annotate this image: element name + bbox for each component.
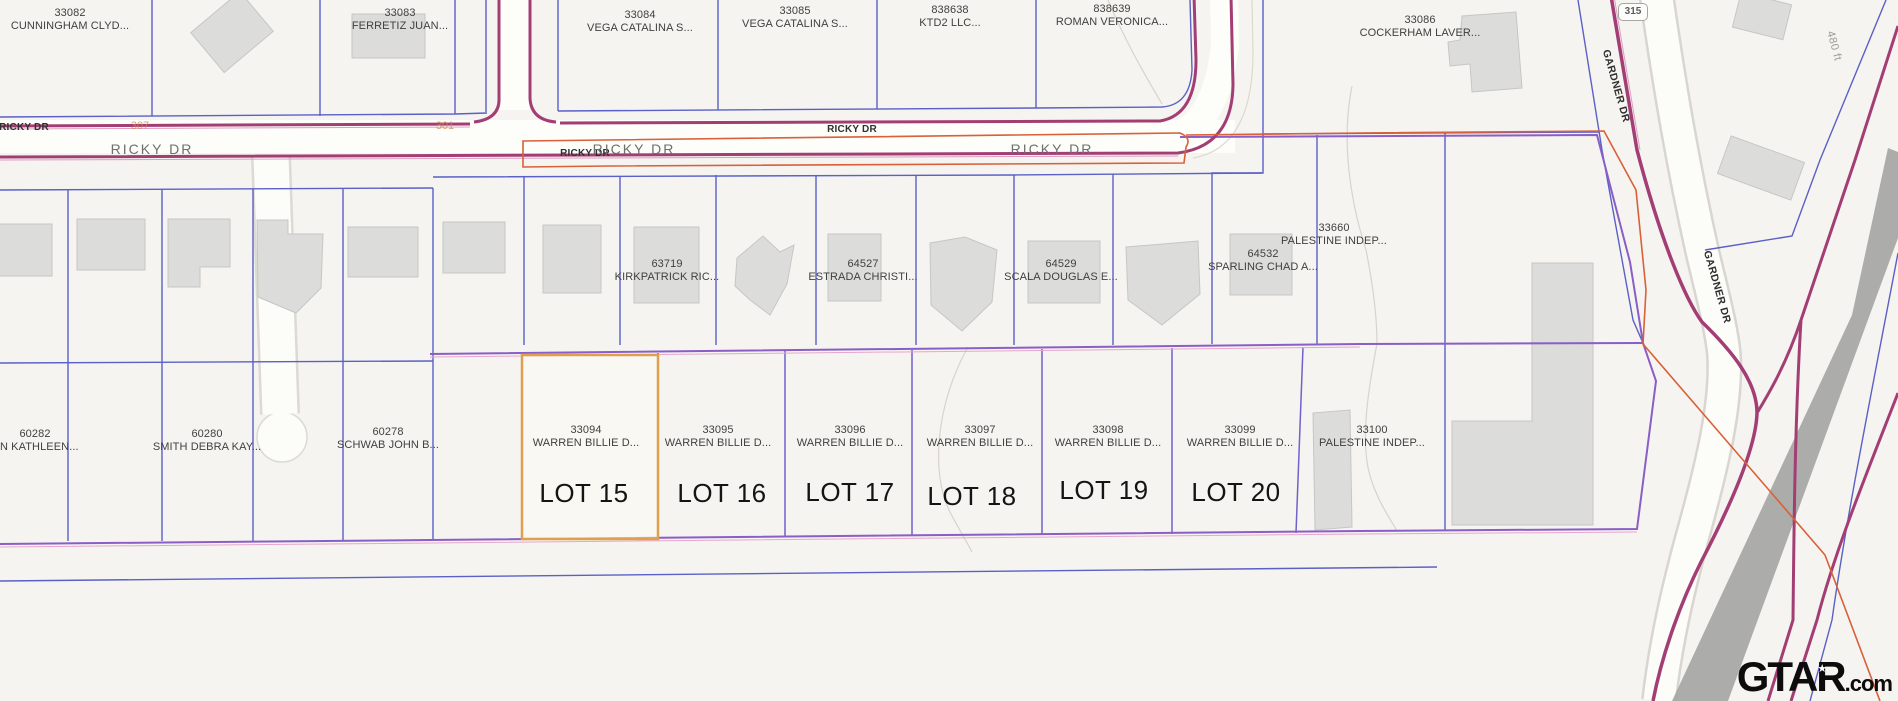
parcel-label[interactable]: 64529SCALA DOUGLAS E... bbox=[1004, 258, 1118, 284]
lot-number-label: LOT 16 bbox=[677, 478, 766, 509]
road-ref-number: 301 bbox=[436, 120, 454, 132]
parcel-label-lot18[interactable]: 33097WARREN BILLIE D... bbox=[927, 424, 1034, 450]
gis-parcel-map-canvas[interactable]: 33082CUNNINGHAM CLYD... 33083FERRETIZ JU… bbox=[0, 0, 1898, 701]
parcel-label[interactable]: 33085VEGA CATALINA S... bbox=[742, 5, 848, 31]
road-surfaces bbox=[0, 0, 1724, 701]
parcel-label[interactable]: 33660PALESTINE INDEP... bbox=[1281, 222, 1387, 248]
parcel-label[interactable]: 33083FERRETIZ JUAN... bbox=[352, 7, 448, 33]
street-label-ricky-dr: RICKY DR bbox=[593, 141, 676, 157]
parcel-label[interactable]: 60278SCHWAB JOHN B... bbox=[337, 426, 439, 452]
parcel-label[interactable]: 838638KTD2 LLC... bbox=[919, 4, 981, 30]
watermark-text: R bbox=[1816, 653, 1844, 700]
lot-number-label: LOT 15 bbox=[539, 478, 628, 509]
parcel-label-lot19[interactable]: 33098WARREN BILLIE D... bbox=[1055, 424, 1162, 450]
parcel-label[interactable]: 60280SMITH DEBRA KAY... bbox=[153, 428, 261, 454]
parcel-label[interactable]: 33084VEGA CATALINA S... bbox=[587, 9, 693, 35]
parcel-label[interactable]: 838639ROMAN VERONICA... bbox=[1056, 3, 1168, 29]
parcel-label[interactable]: 33082CUNNINGHAM CLYD... bbox=[11, 7, 129, 33]
lot-number-label: LOT 17 bbox=[805, 477, 894, 508]
lot-number-label: LOT 18 bbox=[927, 481, 1016, 512]
parcel-label[interactable]: 60282ON KATHLEEN... bbox=[0, 428, 79, 454]
map-layers bbox=[0, 0, 1898, 701]
street-label-ricky-dr: RICKY DR bbox=[111, 141, 194, 157]
lot-number-label: LOT 20 bbox=[1191, 477, 1280, 508]
gtar-watermark[interactable]: GTAR★.com bbox=[1737, 653, 1892, 701]
parcel-label[interactable]: 63719KIRKPATRICK RIC... bbox=[615, 258, 720, 284]
parcel-label[interactable]: 64527ESTRADA CHRISTI... bbox=[808, 258, 917, 284]
star-icon: ★ bbox=[1817, 662, 1827, 675]
parcel-label-33100[interactable]: 33100PALESTINE INDEP... bbox=[1319, 424, 1425, 450]
street-label-ricky-dr: RICKY DR bbox=[0, 122, 49, 133]
watermark-tld: .com bbox=[1845, 671, 1892, 696]
parcel-label-lot20[interactable]: 33099WARREN BILLIE D... bbox=[1187, 424, 1294, 450]
parcel-label-lot17[interactable]: 33096WARREN BILLIE D... bbox=[797, 424, 904, 450]
watermark-text: GTA bbox=[1737, 653, 1817, 700]
parcel-label[interactable]: 64532SPARLING CHAD A... bbox=[1208, 248, 1318, 274]
street-label-ricky-dr: RICKY DR bbox=[1011, 141, 1094, 157]
road-ref-number: 307 bbox=[131, 120, 149, 132]
street-label-ricky-dr: RICKY DR bbox=[827, 124, 877, 135]
parcel-label-lot16[interactable]: 33095WARREN BILLIE D... bbox=[665, 424, 772, 450]
parcel-label-lot15[interactable]: 33094WARREN BILLIE D... bbox=[533, 424, 640, 450]
parcel-label[interactable]: 33086COCKERHAM LAVER... bbox=[1360, 14, 1481, 40]
lot-number-label: LOT 19 bbox=[1059, 475, 1148, 506]
route-shield-315: 315 bbox=[1618, 3, 1648, 21]
